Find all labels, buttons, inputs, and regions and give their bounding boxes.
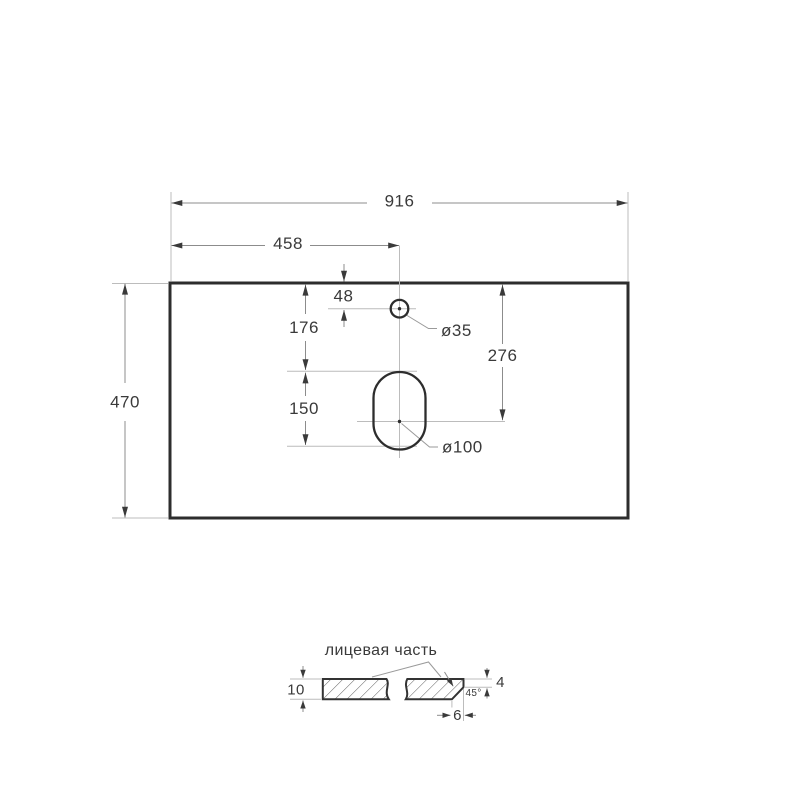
top-view: 916 458 470 48 176 150 276 ø35 ø100 [110, 192, 628, 519]
section-left-piece [323, 679, 389, 699]
countertop-drawing-canvas: 916 458 470 48 176 150 276 ø35 ø100 [0, 0, 800, 800]
face-side-leader [372, 662, 441, 677]
dim-4-label: 4 [496, 674, 505, 691]
dim-48-label: 48 [334, 287, 354, 306]
section-right-piece [406, 679, 464, 699]
dim-458-label: 458 [273, 234, 303, 253]
chamfer-angle-label: 45° [466, 688, 482, 699]
faucet-hole-center-dot [398, 307, 401, 310]
section-view: лицевая часть 10 4 6 45° [287, 642, 509, 724]
drain-axis-dot [398, 420, 401, 423]
dim-470-label: 470 [110, 393, 140, 412]
technical-drawing-page: 916 458 470 48 176 150 276 ø35 ø100 [0, 0, 800, 800]
faucet-hole-diameter-label: ø35 [441, 321, 472, 340]
dim-10-label: 10 [287, 682, 305, 699]
dim-150-label: 150 [289, 399, 319, 418]
dim-276-label: 276 [488, 346, 518, 365]
dim-6-label: 6 [453, 707, 462, 724]
dim-916-label: 916 [385, 192, 415, 211]
face-side-label: лицевая часть [325, 642, 438, 659]
dim-176-label: 176 [289, 318, 319, 337]
drain-slot-diameter-label: ø100 [442, 438, 483, 457]
